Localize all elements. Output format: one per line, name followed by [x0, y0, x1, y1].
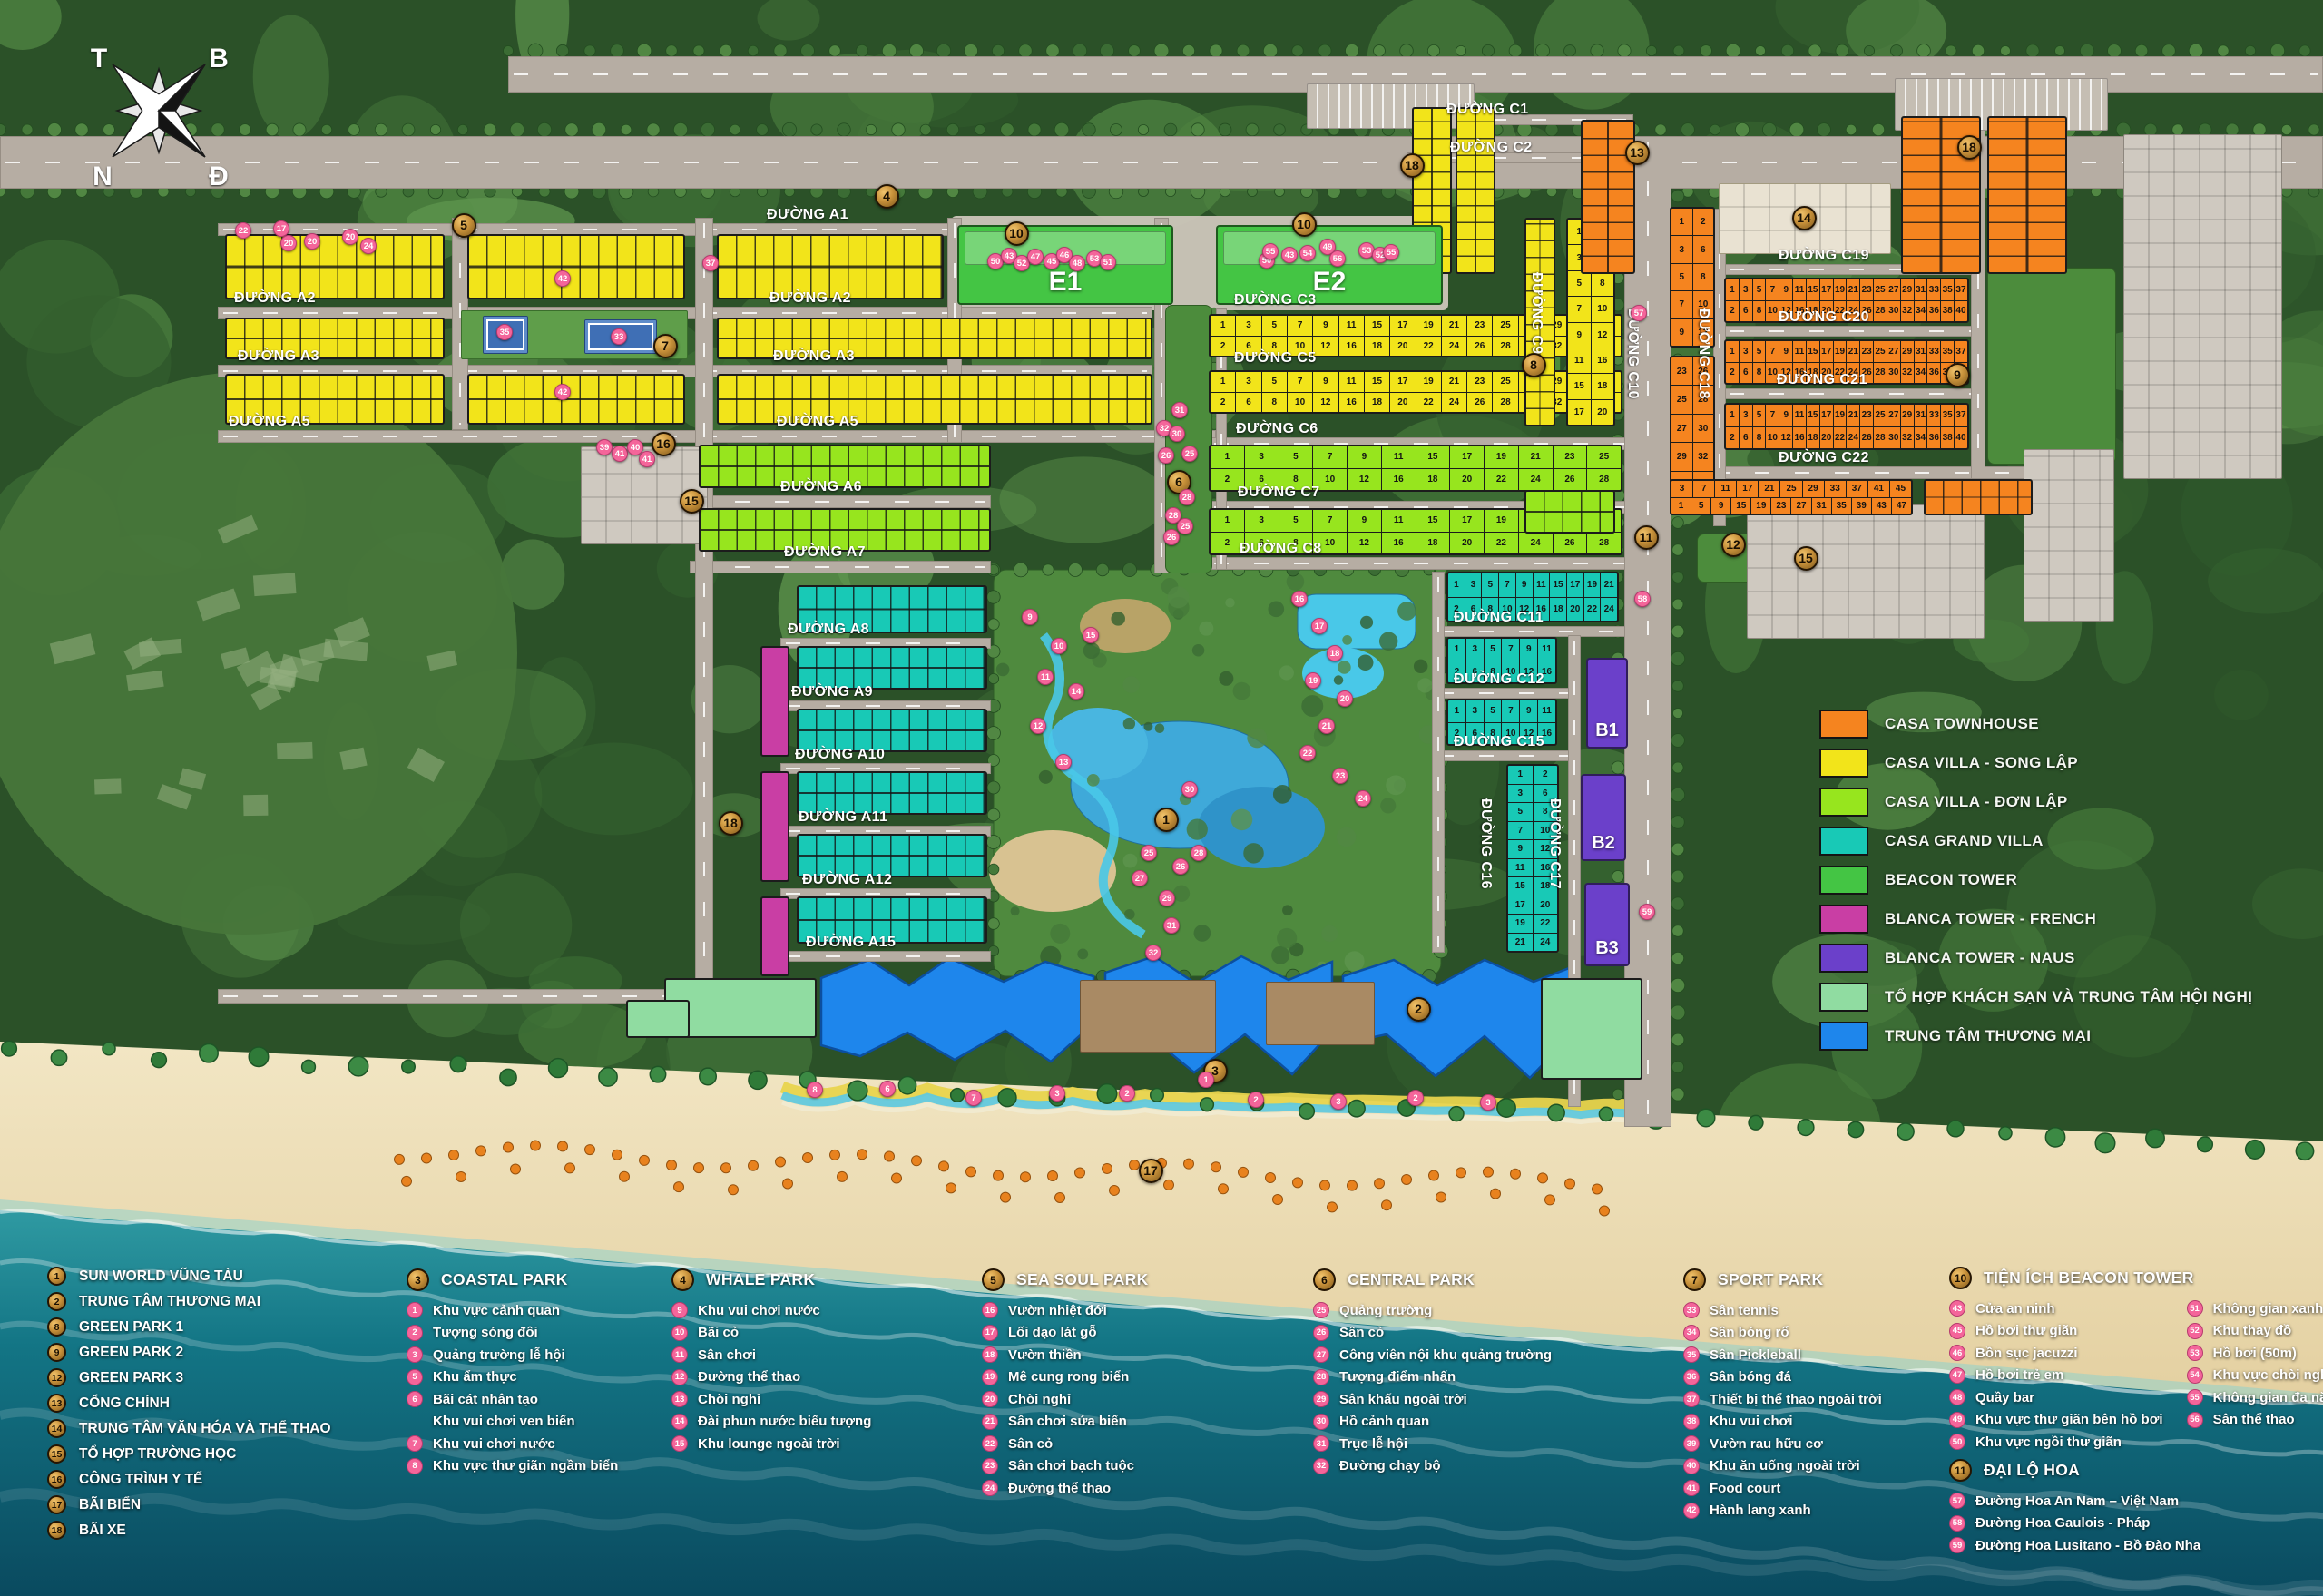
marker-pink[interactable]: 57	[1631, 305, 1647, 321]
lot-cell[interactable]: 23	[1859, 341, 1873, 362]
lot-cell[interactable]: 43	[1871, 498, 1891, 514]
lot-cell[interactable]: 8	[1591, 271, 1614, 296]
lot-cell[interactable]: 9	[1347, 510, 1381, 532]
marker-gold[interactable]: 18	[1400, 153, 1425, 178]
lot-cell[interactable]: 19	[1416, 316, 1441, 336]
lot-cell[interactable]: 19	[1833, 279, 1847, 300]
lot-zone[interactable]	[1924, 479, 2033, 515]
lot-cell[interactable]: 18	[1416, 469, 1450, 491]
lot-cell[interactable]: 1	[1726, 341, 1739, 362]
marker-pink[interactable]: 17	[1311, 618, 1328, 634]
lot-cell[interactable]: 19	[1416, 372, 1441, 392]
marker-pink[interactable]: 48	[1069, 255, 1085, 271]
lot-cell[interactable]: 12	[1347, 469, 1381, 491]
marker-pink[interactable]: 28	[1191, 845, 1207, 861]
lot-cell[interactable]: 20	[1566, 598, 1583, 622]
lot-cell[interactable]: 29	[1802, 481, 1824, 497]
marker-pink[interactable]: 23	[1332, 768, 1348, 784]
lot-cell[interactable]: 29	[1900, 405, 1914, 426]
lot-cell[interactable]: 22	[1583, 598, 1601, 622]
lot-cell[interactable]: 30	[1887, 301, 1900, 322]
lot-cell[interactable]: 6	[1235, 393, 1260, 413]
lot-cell[interactable]: 7	[1312, 446, 1347, 468]
building-gray[interactable]	[1747, 504, 1985, 639]
lot-zone[interactable]: 1357911151719212325272931332681012161820…	[1209, 370, 1622, 414]
lot-cell[interactable]: 7	[1287, 372, 1312, 392]
lot-cell[interactable]: 22	[1416, 337, 1441, 357]
lot-cell[interactable]: 23	[1859, 279, 1873, 300]
tower-b2[interactable]: B2	[1581, 774, 1626, 861]
marker-pink[interactable]: 3	[1480, 1094, 1496, 1111]
lot-cell[interactable]: 17	[1819, 341, 1833, 362]
lot-cell[interactable]: 16	[1338, 337, 1364, 357]
marker-pink[interactable]: 3	[1330, 1093, 1347, 1110]
lot-cell[interactable]: 33	[1926, 405, 1940, 426]
lot-cell[interactable]: 38	[1940, 301, 1954, 322]
lot-cell[interactable]: 22	[1484, 469, 1518, 491]
lot-cell[interactable]: 17	[1449, 446, 1484, 468]
marker-gold[interactable]: 10	[1005, 221, 1029, 246]
lot-cell[interactable]: 26	[1553, 469, 1587, 491]
lot-cell[interactable]: 36	[1926, 363, 1940, 384]
lot-cell[interactable]: 20	[1449, 533, 1484, 554]
lot-cell[interactable]: 36	[1926, 301, 1940, 322]
lot-cell[interactable]: 21	[1846, 341, 1859, 362]
lot-cell[interactable]: 23	[1770, 498, 1790, 514]
lot-zone[interactable]	[1456, 107, 1495, 274]
lot-cell[interactable]: 33	[1926, 279, 1940, 300]
lot-cell[interactable]: 5	[1261, 316, 1287, 336]
lot-cell[interactable]: 30	[1887, 363, 1900, 384]
lot-cell[interactable]: 11	[1381, 446, 1416, 468]
marker-gold[interactable]: 4	[875, 184, 899, 209]
lot-cell[interactable]: 27	[1790, 498, 1810, 514]
building-gray[interactable]	[2024, 449, 2114, 622]
lot-cell[interactable]: 12	[1779, 427, 1792, 449]
marker-pink[interactable]: 18	[1327, 645, 1343, 661]
lot-cell[interactable]: 2	[1726, 301, 1739, 322]
lot-cell[interactable]: 9	[1779, 341, 1792, 362]
lot-cell[interactable]: 15	[1416, 510, 1450, 532]
lot-cell[interactable]: 5	[1752, 279, 1766, 300]
lot-cell[interactable]: 9	[1779, 405, 1792, 426]
lot-zone[interactable]	[797, 709, 987, 752]
lot-cell[interactable]: 22	[1533, 915, 1558, 933]
lot-zone[interactable]	[797, 646, 987, 690]
lot-cell[interactable]: 15	[1568, 374, 1591, 398]
lot-cell[interactable]: 28	[1873, 363, 1887, 384]
lot-cell[interactable]: 40	[1954, 427, 1967, 449]
lot-cell[interactable]: 7	[1501, 639, 1519, 661]
marker-pink[interactable]: 20	[342, 229, 358, 245]
lot-cell[interactable]: 24	[1441, 337, 1466, 357]
lot-cell[interactable]: 22	[1833, 427, 1847, 449]
lot-cell[interactable]: 10	[1591, 297, 1614, 321]
lot-cell[interactable]: 25	[1671, 386, 1692, 413]
marker-pink[interactable]: 32	[1145, 945, 1161, 961]
lot-cell[interactable]: 7	[1671, 291, 1692, 318]
marker-pink[interactable]: 12	[1030, 718, 1046, 734]
lot-cell[interactable]: 16	[1338, 393, 1364, 413]
lot-cell[interactable]: 15	[1806, 341, 1819, 362]
lot-cell[interactable]: 23	[1466, 316, 1492, 336]
lot-cell[interactable]: 7	[1287, 316, 1312, 336]
lot-cell[interactable]: 8	[1692, 264, 1714, 290]
lot-cell[interactable]: 9	[1779, 279, 1792, 300]
lot-cell[interactable]: 19	[1583, 573, 1601, 597]
lot-cell[interactable]: 28	[1873, 301, 1887, 322]
marker-gold[interactable]: 9	[1946, 363, 1970, 387]
lot-cell[interactable]: 21	[1846, 279, 1859, 300]
marker-gold[interactable]: 10	[1292, 212, 1317, 237]
marker-pink[interactable]: 24	[1355, 790, 1371, 807]
marker-pink[interactable]: 16	[1291, 591, 1308, 607]
marker-pink[interactable]: 55	[1262, 243, 1279, 259]
lot-cell[interactable]: 5	[1481, 573, 1498, 597]
lot-cell[interactable]: 1	[1448, 639, 1465, 661]
tower-b1[interactable]: B1	[1586, 658, 1628, 749]
lot-cell[interactable]: 18	[1364, 393, 1389, 413]
lot-cell[interactable]: 21	[1441, 372, 1466, 392]
lot-cell[interactable]: 12	[1347, 533, 1381, 554]
lot-cell[interactable]: 17	[1389, 316, 1415, 336]
lot-zone[interactable]	[1581, 120, 1635, 274]
lot-cell[interactable]: 9	[1519, 700, 1537, 722]
lot-cell[interactable]: 26	[1466, 393, 1492, 413]
lot-cell[interactable]: 27	[1887, 405, 1900, 426]
lot-cell[interactable]: 25	[1873, 341, 1887, 362]
lot-cell[interactable]: 5	[1279, 510, 1313, 532]
marker-pink[interactable]: 19	[1305, 672, 1321, 689]
marker-pink[interactable]: 2	[1407, 1090, 1424, 1106]
lot-zone[interactable]	[467, 234, 685, 299]
lot-cell[interactable]: 39	[1851, 498, 1871, 514]
lot-cell[interactable]: 3	[1465, 573, 1482, 597]
lot-cell[interactable]: 3	[1739, 341, 1752, 362]
marker-pink[interactable]: 20	[280, 235, 297, 251]
lot-cell[interactable]: 23	[1859, 405, 1873, 426]
marker-pink[interactable]: 29	[1159, 890, 1175, 906]
lot-cell[interactable]: 9	[1519, 639, 1537, 661]
lot-cell[interactable]: 1	[1726, 405, 1739, 426]
lot-cell[interactable]: 8	[1752, 363, 1766, 384]
lot-cell[interactable]: 28	[1586, 533, 1621, 554]
lot-cell[interactable]: 18	[1549, 598, 1566, 622]
lot-cell[interactable]: 31	[1914, 405, 1927, 426]
lot-cell[interactable]: 1	[1211, 446, 1244, 468]
lot-cell[interactable]: 3	[1739, 279, 1752, 300]
marker-pink[interactable]: 51	[1100, 254, 1116, 270]
building-brown[interactable]	[1266, 982, 1375, 1045]
lot-zone[interactable]	[797, 771, 987, 815]
lot-cell[interactable]: 31	[1811, 498, 1831, 514]
lot-cell[interactable]: 3	[1235, 372, 1260, 392]
marker-pink[interactable]: 43	[1281, 247, 1298, 263]
marker-pink[interactable]: 42	[554, 384, 571, 400]
marker-gold[interactable]: 18	[719, 811, 743, 836]
lot-cell[interactable]: 23	[1466, 372, 1492, 392]
lot-cell[interactable]: 21	[1758, 481, 1779, 497]
lot-cell[interactable]: 40	[1954, 301, 1967, 322]
lot-cell[interactable]: 17	[1508, 896, 1533, 915]
lot-cell[interactable]: 20	[1819, 427, 1833, 449]
lot-cell[interactable]: 28	[1492, 337, 1517, 357]
marker-gold[interactable]: 2	[1407, 997, 1431, 1022]
lot-cell[interactable]: 3	[1244, 446, 1279, 468]
lot-cell[interactable]: 23	[1553, 446, 1587, 468]
lot-cell[interactable]: 34	[1914, 363, 1927, 384]
lot-cell[interactable]: 36	[1926, 427, 1940, 449]
marker-gold[interactable]: 8	[1522, 353, 1546, 377]
lot-cell[interactable]: 15	[1806, 279, 1819, 300]
marker-pink[interactable]: 20	[1337, 690, 1353, 707]
marker-gold[interactable]: 15	[680, 489, 704, 514]
marker-pink[interactable]: 55	[1383, 244, 1399, 260]
lot-cell[interactable]: 2	[1533, 766, 1558, 784]
lot-cell[interactable]: 3	[1465, 639, 1484, 661]
marker-pink[interactable]: 58	[1634, 591, 1651, 607]
green-park[interactable]	[1987, 268, 2116, 465]
lot-cell[interactable]: 24	[1518, 533, 1553, 554]
marker-pink[interactable]: 28	[1179, 489, 1195, 505]
lot-cell[interactable]: 34	[1914, 301, 1927, 322]
lot-cell[interactable]: 30	[1887, 427, 1900, 449]
lot-cell[interactable]: 11	[1338, 372, 1364, 392]
lot-cell[interactable]: 11	[1792, 341, 1806, 362]
lot-cell[interactable]: 20	[1389, 337, 1415, 357]
lot-cell[interactable]: 21	[1846, 405, 1859, 426]
lot-cell[interactable]: 15	[1364, 316, 1389, 336]
lot-cell[interactable]: 27	[1671, 415, 1692, 442]
lot-cell[interactable]: 28	[1492, 393, 1517, 413]
lot-zone[interactable]	[760, 771, 789, 882]
marker-pink[interactable]: 15	[1083, 627, 1099, 643]
lot-cell[interactable]: 16	[1792, 427, 1806, 449]
building-brown[interactable]	[1080, 980, 1216, 1053]
lot-cell[interactable]: 9	[1312, 316, 1338, 336]
lot-cell[interactable]: 26	[1553, 533, 1587, 554]
lot-cell[interactable]: 24	[1441, 393, 1466, 413]
lot-cell[interactable]: 29	[1900, 279, 1914, 300]
lot-cell[interactable]: 1	[1211, 510, 1244, 532]
lot-zone[interactable]	[797, 834, 987, 877]
lot-cell[interactable]: 11	[1568, 348, 1591, 373]
lot-cell[interactable]: 3	[1508, 785, 1533, 803]
lot-cell[interactable]: 25	[1492, 316, 1517, 336]
building-gray[interactable]	[2123, 134, 2282, 479]
marker-pink[interactable]: 35	[496, 324, 513, 340]
lot-cell[interactable]: 17	[1568, 400, 1591, 425]
lot-cell[interactable]: 1	[1671, 209, 1692, 235]
lot-cell[interactable]: 7	[1568, 297, 1591, 321]
marker-pink[interactable]: 42	[554, 270, 571, 287]
marker-pink[interactable]: 7	[965, 1090, 982, 1106]
lot-cell[interactable]: 1	[1448, 573, 1465, 597]
marker-pink[interactable]: 37	[702, 255, 719, 271]
marker-pink[interactable]: 27	[1132, 870, 1148, 886]
lot-zone[interactable]	[760, 646, 789, 757]
marker-pink[interactable]: 11	[1037, 669, 1054, 685]
lot-cell[interactable]: 8	[1752, 427, 1766, 449]
lot-cell[interactable]: 17	[1736, 481, 1758, 497]
lot-cell[interactable]: 1	[1508, 766, 1533, 784]
lot-cell[interactable]: 18	[1364, 337, 1389, 357]
lot-cell[interactable]: 6	[1739, 301, 1752, 322]
lot-zone[interactable]: 3711172125293337414515915192327313539434…	[1670, 479, 1913, 515]
marker-gold[interactable]: 5	[452, 213, 476, 238]
lot-cell[interactable]: 17	[1449, 510, 1484, 532]
marker-pink[interactable]: 22	[235, 222, 251, 239]
marker-pink[interactable]: 41	[612, 446, 628, 462]
lot-cell[interactable]: 6	[1739, 363, 1752, 384]
lot-cell[interactable]: 29	[1671, 443, 1692, 470]
marker-gold[interactable]: 12	[1721, 533, 1746, 557]
lot-cell[interactable]: 1	[1671, 498, 1691, 514]
lot-cell[interactable]: 7	[1765, 341, 1779, 362]
lot-cell[interactable]: 5	[1671, 264, 1692, 290]
lot-cell[interactable]: 3	[1739, 405, 1752, 426]
lot-cell[interactable]: 38	[1940, 427, 1954, 449]
marker-pink[interactable]: 54	[1299, 245, 1316, 261]
lot-cell[interactable]: 27	[1887, 279, 1900, 300]
lot-cell[interactable]: 25	[1779, 481, 1801, 497]
mall-building[interactable]	[821, 958, 1093, 1062]
lot-cell[interactable]: 16	[1381, 469, 1416, 491]
lot-cell[interactable]: 19	[1833, 405, 1847, 426]
lot-cell[interactable]: 2	[1692, 209, 1714, 235]
marker-gold[interactable]: 1	[1154, 808, 1179, 832]
lot-cell[interactable]: 32	[1900, 301, 1914, 322]
lot-cell[interactable]: 24	[1600, 598, 1617, 622]
lot-cell[interactable]: 12	[1312, 393, 1338, 413]
lot-cell[interactable]: 33	[1824, 481, 1846, 497]
marker-gold[interactable]: 7	[653, 334, 678, 358]
lot-cell[interactable]: 20	[1533, 896, 1558, 915]
lot-cell[interactable]: 31	[1914, 341, 1927, 362]
lot-cell[interactable]: 5	[1752, 405, 1766, 426]
lot-cell[interactable]: 3	[1235, 316, 1260, 336]
lot-cell[interactable]: 9	[1508, 840, 1533, 858]
lot-cell[interactable]: 15	[1364, 372, 1389, 392]
marker-pink[interactable]: 24	[360, 238, 377, 254]
lot-cell[interactable]: 11	[1537, 639, 1555, 661]
lot-cell[interactable]: 37	[1954, 341, 1967, 362]
lot-cell[interactable]: 35	[1940, 405, 1954, 426]
lot-cell[interactable]: 11	[1338, 316, 1364, 336]
lot-cell[interactable]: 5	[1484, 639, 1502, 661]
marker-pink[interactable]: 25	[1177, 518, 1193, 534]
marker-pink[interactable]: 26	[1172, 858, 1189, 875]
lot-cell[interactable]: 9	[1515, 573, 1533, 597]
marker-gold[interactable]: 11	[1634, 525, 1659, 550]
lot-cell[interactable]: 22	[1484, 533, 1518, 554]
lot-cell[interactable]: 2	[1726, 363, 1739, 384]
marker-pink[interactable]: 9	[1022, 609, 1038, 625]
lot-cell[interactable]: 29	[1900, 341, 1914, 362]
marker-pink[interactable]: 31	[1171, 402, 1188, 418]
lot-cell[interactable]: 22	[1416, 393, 1441, 413]
lot-cell[interactable]: 9	[1347, 446, 1381, 468]
lot-cell[interactable]: 15	[1508, 877, 1533, 896]
marker-gold[interactable]: 18	[1957, 135, 1982, 160]
lot-cell[interactable]: 21	[1508, 934, 1533, 952]
marker-pink[interactable]: 20	[304, 233, 320, 250]
lot-cell[interactable]: 32	[1900, 363, 1914, 384]
lot-cell[interactable]: 3	[1244, 510, 1279, 532]
marker-pink[interactable]: 2	[1119, 1085, 1135, 1102]
lot-cell[interactable]: 24	[1518, 469, 1553, 491]
marker-gold[interactable]: 13	[1625, 141, 1650, 165]
lot-cell[interactable]: 25	[1586, 446, 1621, 468]
lot-cell[interactable]: 3	[1465, 700, 1484, 722]
marker-pink[interactable]: 25	[1181, 446, 1198, 462]
lot-cell[interactable]: 47	[1891, 498, 1911, 514]
lot-cell[interactable]: 3	[1671, 481, 1692, 497]
lot-cell[interactable]: 15	[1549, 573, 1566, 597]
lot-cell[interactable]: 18	[1591, 374, 1614, 398]
lot-cell[interactable]: 2	[1726, 427, 1739, 449]
lot-cell[interactable]: 37	[1954, 279, 1967, 300]
marker-pink[interactable]: 3	[1049, 1085, 1065, 1102]
lot-cell[interactable]: 5	[1279, 446, 1313, 468]
lot-cell[interactable]: 5	[1261, 372, 1287, 392]
lot-cell[interactable]: 17	[1389, 372, 1415, 392]
marker-pink[interactable]: 56	[1329, 250, 1346, 267]
lot-cell[interactable]: 24	[1846, 427, 1859, 449]
lot-cell[interactable]: 7	[1501, 700, 1519, 722]
lot-cell[interactable]: 5	[1568, 271, 1591, 296]
lot-cell[interactable]: 5	[1484, 700, 1502, 722]
lot-cell[interactable]: 37	[1846, 481, 1867, 497]
lot-cell[interactable]: 35	[1940, 341, 1954, 362]
marker-pink[interactable]: 14	[1068, 683, 1084, 700]
marker-pink[interactable]: 10	[1051, 638, 1067, 654]
lot-zone[interactable]	[1541, 978, 1642, 1080]
lot-cell[interactable]: 15	[1806, 405, 1819, 426]
lot-cell[interactable]: 30	[1692, 415, 1714, 442]
lot-cell[interactable]: 7	[1498, 573, 1515, 597]
lot-zone[interactable]	[760, 896, 789, 976]
lot-cell[interactable]: 1	[1448, 700, 1465, 722]
marker-pink[interactable]: 30	[1169, 426, 1185, 442]
lot-cell[interactable]: 19	[1484, 510, 1518, 532]
lot-cell[interactable]: 6	[1739, 427, 1752, 449]
marker-pink[interactable]: 59	[1639, 904, 1655, 920]
lot-cell[interactable]: 18	[1416, 533, 1450, 554]
lot-cell[interactable]: 10	[1765, 301, 1779, 322]
lot-cell[interactable]: 16	[1381, 533, 1416, 554]
tower-b3[interactable]: B3	[1584, 883, 1630, 966]
lot-cell[interactable]: 19	[1833, 341, 1847, 362]
marker-pink[interactable]: 1	[1198, 1072, 1214, 1088]
lot-zone[interactable]	[1524, 490, 1615, 534]
marker-pink[interactable]: 33	[611, 328, 627, 345]
lot-cell[interactable]: 21	[1600, 573, 1617, 597]
marker-pink[interactable]: 2	[1248, 1092, 1264, 1108]
lot-cell[interactable]: 31	[1914, 279, 1927, 300]
lot-cell[interactable]: 45	[1889, 481, 1911, 497]
lot-cell[interactable]: 7	[1765, 279, 1779, 300]
lot-cell[interactable]: 18	[1806, 427, 1819, 449]
marker-gold[interactable]: 16	[652, 432, 676, 456]
lot-cell[interactable]: 32	[1692, 443, 1714, 470]
marker-pink[interactable]: 30	[1181, 781, 1198, 798]
lot-cell[interactable]: 24	[1533, 934, 1558, 952]
lot-cell[interactable]: 25	[1873, 279, 1887, 300]
lot-cell[interactable]: 9	[1710, 498, 1730, 514]
lot-cell[interactable]: 21	[1518, 446, 1553, 468]
marker-pink[interactable]: 26	[1163, 529, 1180, 545]
